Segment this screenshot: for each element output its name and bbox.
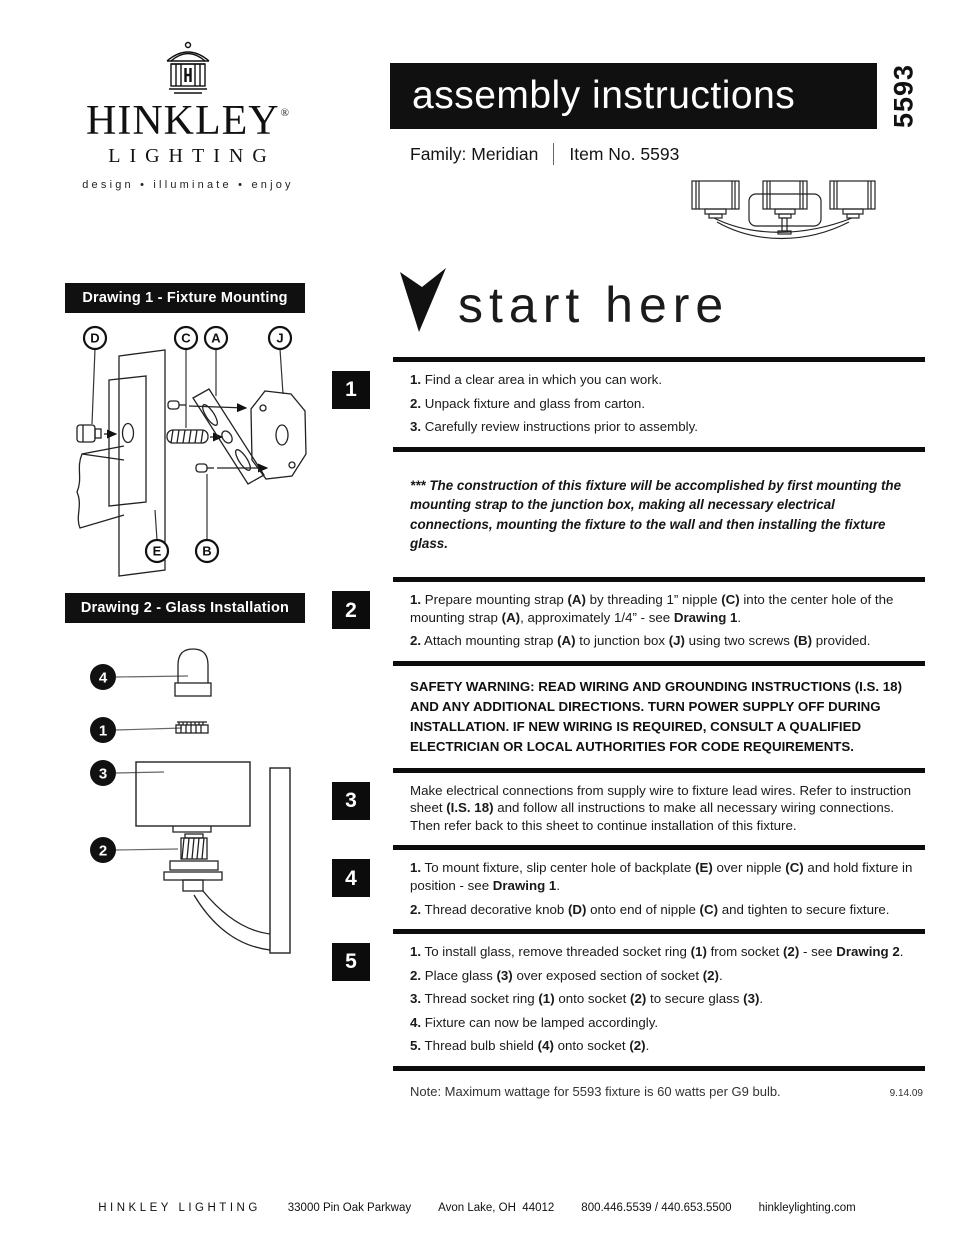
callout-C: C bbox=[181, 331, 191, 346]
brand-name-row: HINKLEY® bbox=[72, 100, 304, 142]
footer-phone: 800.446.5539 / 440.653.5500 bbox=[581, 1202, 731, 1214]
callout-2: 2 bbox=[99, 843, 107, 860]
brand-sub: LIGHTING bbox=[80, 145, 304, 168]
drawing1-illustration: D C A J E B bbox=[62, 318, 314, 580]
step-1-number: 1 bbox=[332, 371, 370, 409]
page-title: assembly instructions bbox=[412, 74, 795, 118]
brand-name: HINKLEY bbox=[86, 98, 280, 144]
step-4-number: 4 bbox=[332, 859, 370, 897]
separator bbox=[553, 143, 554, 165]
footer-website: hinkleylighting.com bbox=[759, 1202, 856, 1214]
step-4-line: 1. To mount fixture, slip center hole of… bbox=[410, 859, 923, 894]
item-label: Item No. 5593 bbox=[569, 144, 679, 165]
step-2-line: 1. Prepare mounting strap (A) by threadi… bbox=[410, 591, 923, 626]
callout-B: B bbox=[202, 544, 211, 559]
callout-J: J bbox=[276, 331, 283, 346]
brand-logo: HINKLEY® LIGHTING design • illuminate • … bbox=[72, 40, 304, 191]
drawing2-illustration: 4 1 3 2 bbox=[62, 638, 314, 980]
footer-address: 33000 Pin Oak Parkway bbox=[288, 1202, 411, 1214]
step-1-line: 2. Unpack fixture and glass from carton. bbox=[410, 395, 923, 413]
brand-tagline: design • illuminate • enjoy bbox=[72, 179, 304, 191]
step-4-block: 4 1. To mount fixture, slip center hole … bbox=[393, 850, 925, 929]
step-3-line: Make electrical connections from supply … bbox=[410, 782, 923, 835]
drawing1-callouts: D C A J E B bbox=[84, 327, 291, 562]
family-label: Family: Meridian bbox=[410, 144, 538, 165]
start-here-text: start here bbox=[458, 280, 729, 330]
item-number-vertical: 5593 bbox=[886, 54, 922, 138]
callout-3: 3 bbox=[99, 766, 107, 783]
callout-A: A bbox=[211, 331, 221, 346]
page-title-banner: assembly instructions bbox=[390, 63, 877, 129]
step-2-number: 2 bbox=[332, 591, 370, 629]
step-1-block: 1 1. Find a clear area in which you can … bbox=[393, 362, 925, 447]
footer: HINKLEY LIGHTING 33000 Pin Oak Parkway A… bbox=[0, 1202, 954, 1214]
step-2-block: 2 1. Prepare mounting strap (A) by threa… bbox=[393, 582, 925, 661]
instructions-column: 1 1. Find a clear area in which you can … bbox=[393, 357, 925, 1099]
drawing2-title: Drawing 2 - Glass Installation bbox=[81, 600, 289, 616]
step-2-line: 2. Attach mounting strap (A) to junction… bbox=[410, 632, 923, 650]
revision-date: 9.14.09 bbox=[890, 1088, 923, 1099]
drawing2-leader-lines bbox=[116, 676, 188, 850]
step-5-line: 3. Thread socket ring (1) onto socket (2… bbox=[410, 990, 923, 1008]
callout-D: D bbox=[90, 331, 99, 346]
drawing2-title-banner: Drawing 2 - Glass Installation bbox=[65, 593, 305, 623]
registered-mark: ® bbox=[281, 107, 290, 119]
callout-E: E bbox=[153, 544, 162, 559]
callout-4: 4 bbox=[99, 670, 108, 687]
step-5-line: 5. Thread bulb shield (4) onto socket (2… bbox=[410, 1037, 923, 1055]
callout-1: 1 bbox=[99, 723, 107, 740]
wattage-note-row: Note: Maximum wattage for 5593 fixture i… bbox=[393, 1071, 925, 1099]
safety-warning: SAFETY WARNING: READ WIRING AND GROUNDIN… bbox=[393, 666, 925, 768]
step-5-number: 5 bbox=[332, 943, 370, 981]
footer-brand: HINKLEY LIGHTING bbox=[98, 1202, 261, 1214]
step-3-number: 3 bbox=[332, 782, 370, 820]
step-5-block: 5 1. To install glass, remove threaded s… bbox=[393, 934, 925, 1066]
lantern-logo-icon bbox=[156, 40, 220, 98]
step-5-line: 4. Fixture can now be lamped accordingly… bbox=[410, 1014, 923, 1032]
assembly-instructions-page: HINKLEY® LIGHTING design • illuminate • … bbox=[0, 0, 954, 1235]
wattage-note: Note: Maximum wattage for 5593 fixture i… bbox=[410, 1084, 781, 1099]
start-here: start here bbox=[398, 266, 729, 338]
footer-city: Avon Lake, OH 44012 bbox=[438, 1202, 554, 1214]
drawing1-leader-lines bbox=[92, 349, 283, 540]
drawing1-title: Drawing 1 - Fixture Mounting bbox=[82, 290, 287, 306]
drawing2-parts bbox=[136, 649, 290, 953]
drawing1-parts bbox=[77, 350, 306, 576]
step-5-line: 2. Place glass (3) over exposed section … bbox=[410, 967, 923, 985]
construction-note: *** The construction of this fixture wil… bbox=[393, 452, 925, 578]
step-5-line: 1. To install glass, remove threaded soc… bbox=[410, 943, 923, 961]
product-info-line: Family: Meridian Item No. 5593 bbox=[410, 143, 679, 165]
drawing2-callouts: 4 1 3 2 bbox=[90, 664, 116, 863]
down-arrow-icon bbox=[398, 266, 450, 338]
step-4-line: 2. Thread decorative knob (D) onto end o… bbox=[410, 901, 923, 919]
step-1-line: 3. Carefully review instructions prior t… bbox=[410, 418, 923, 436]
step-1-line: 1. Find a clear area in which you can wo… bbox=[410, 371, 923, 389]
drawing1-title-banner: Drawing 1 - Fixture Mounting bbox=[65, 283, 305, 313]
step-3-block: 3 Make electrical connections from suppl… bbox=[393, 773, 925, 846]
fixture-illustration bbox=[672, 168, 884, 240]
